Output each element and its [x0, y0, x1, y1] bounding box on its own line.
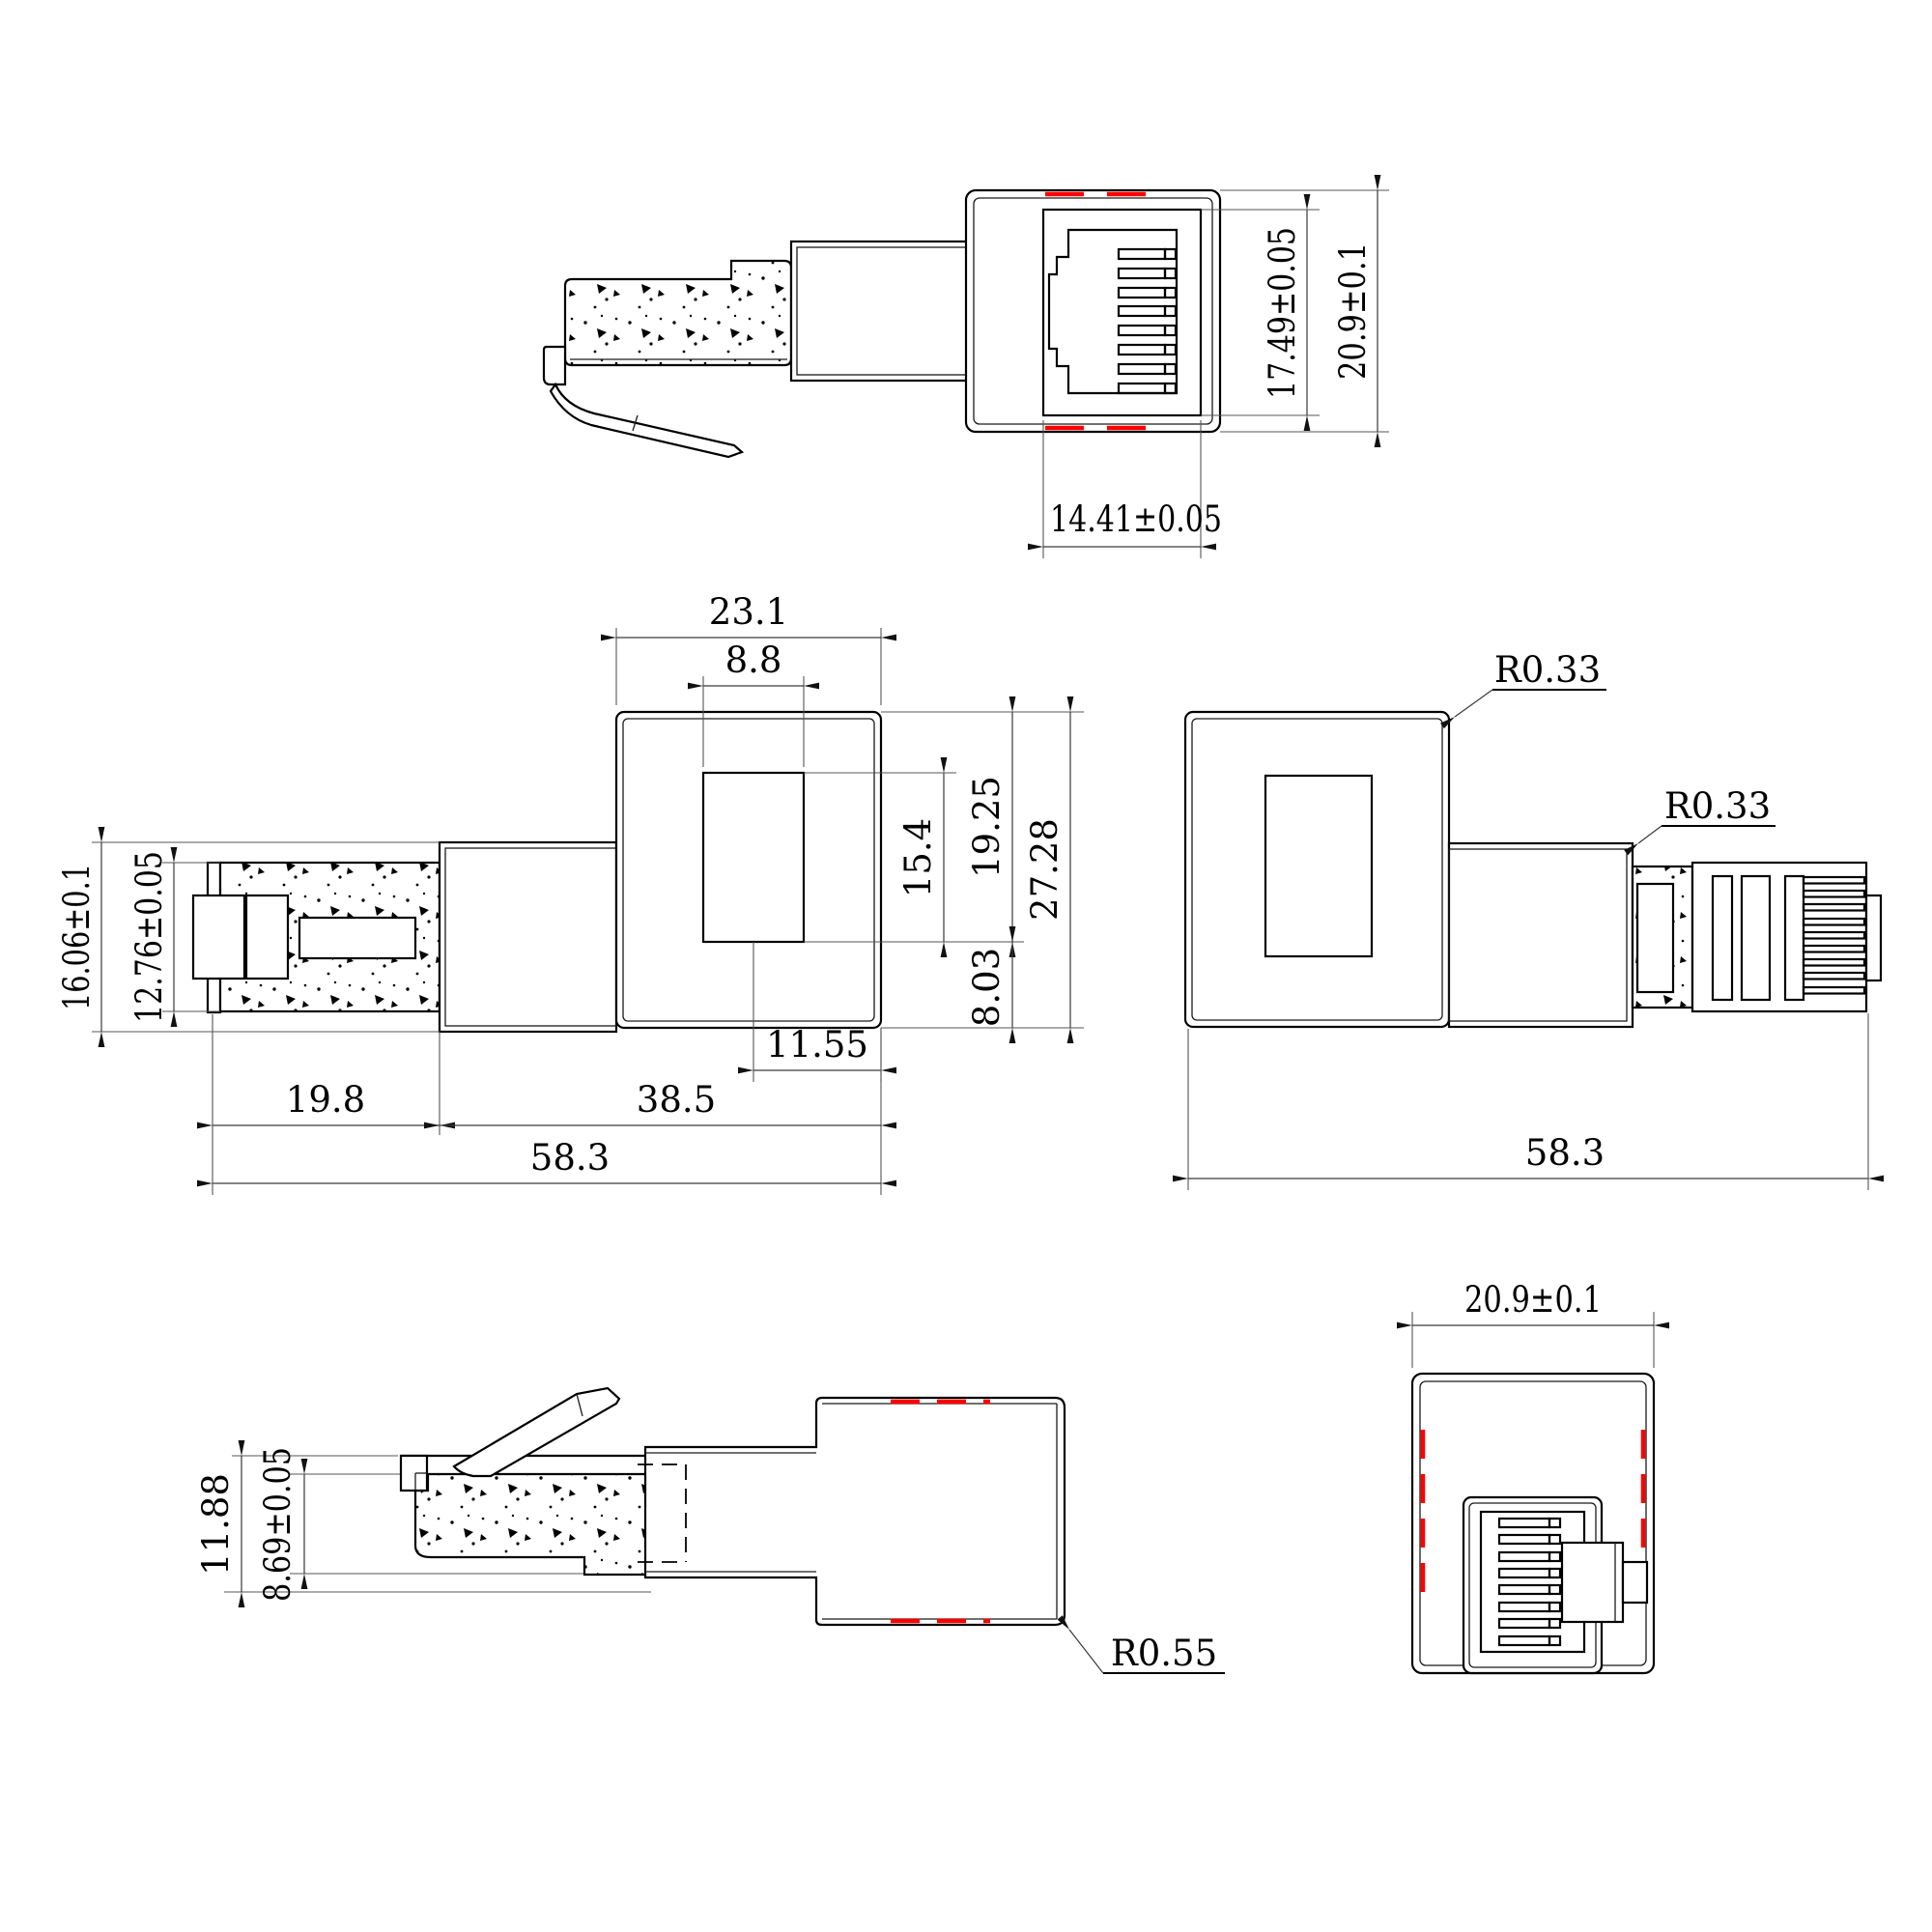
dim-rear-width: 20.9±0.1	[1464, 1279, 1602, 1321]
drawing-sheet: 14.41±0.05 17.49±0.05 20.9±0.1	[0, 0, 1932, 1932]
side-view-annotations: R0.55	[1069, 1630, 1225, 1674]
dim-lower-height: 8.03	[966, 948, 1008, 1027]
dim-socket-width: 14.41±0.05	[1050, 498, 1222, 540]
radius-label-body: R0.33	[1494, 649, 1601, 691]
body-side	[638, 1398, 1065, 1625]
dim-plug-length: 19.8	[286, 1079, 365, 1121]
dim-window-width: 8.8	[725, 639, 782, 681]
plug-tip-tab	[544, 347, 565, 384]
bottom-view: R0.33 R0.33 58.3	[1185, 649, 1881, 1190]
plug-top	[193, 863, 440, 1012]
plug-side-profile	[544, 261, 791, 457]
rj45-keystone-cutout	[1049, 230, 1177, 393]
front-view: 14.41±0.05 17.49±0.05 20.9±0.1	[544, 190, 1389, 558]
dim-socket-height: 17.49±0.05	[1262, 227, 1303, 399]
plug-tip-nub	[1866, 895, 1881, 980]
dim-side-overall-height: 11.88	[195, 1473, 237, 1576]
rear-view-dimensions: 20.9±0.1	[1412, 1279, 1654, 1368]
neck-top	[440, 842, 616, 1032]
body-top-mirrored	[1185, 712, 1449, 1027]
dim-plug-section-height: 16.06±0.1	[56, 864, 98, 1010]
body-window	[703, 773, 804, 942]
plug-side-latch-up	[401, 1388, 651, 1575]
dim-overall-height: 20.9±0.1	[1332, 242, 1374, 380]
dim-window-height: 15.4	[897, 818, 939, 897]
dim-total-height: 27.28	[1024, 818, 1065, 921]
dim-total-length-mirrored: 58.3	[1525, 1132, 1605, 1174]
dim-side-plug-height: 8.69±0.05	[257, 1447, 298, 1602]
plug-latch-up	[454, 1388, 619, 1476]
dim-body-length: 38.5	[637, 1079, 716, 1121]
rear-view: 20.9±0.1	[1412, 1279, 1654, 1673]
dim-window-offset: 11.55	[766, 1024, 868, 1065]
radius-label-neck: R0.33	[1664, 785, 1771, 827]
dim-plug-body-height: 12.76±0.05	[128, 851, 170, 1023]
neck-top-mirrored	[1449, 843, 1633, 1027]
top-view: 23.1 8.8 16.06±0.1 12.76±0.05 15.4 19.25…	[56, 591, 1084, 1195]
side-view: 11.88 8.69±0.05	[195, 1388, 1225, 1674]
dim-body-width: 23.1	[709, 591, 788, 633]
rear-latch-block	[1562, 1543, 1623, 1622]
body-top	[616, 712, 881, 1028]
plug-latch	[551, 384, 742, 457]
radius-label-side: R0.55	[1111, 1633, 1217, 1674]
rear-latch-step	[1623, 1562, 1647, 1603]
plug-top-mirrored	[1633, 863, 1881, 1011]
dim-total-length: 58.3	[530, 1137, 610, 1179]
dim-upper-height: 19.25	[966, 776, 1008, 878]
technical-drawing: 14.41±0.05 17.49±0.05 20.9±0.1	[0, 0, 1932, 1932]
body-window-mirrored	[1265, 776, 1372, 956]
middle-block	[791, 241, 970, 381]
jack-front-face	[966, 190, 1220, 432]
